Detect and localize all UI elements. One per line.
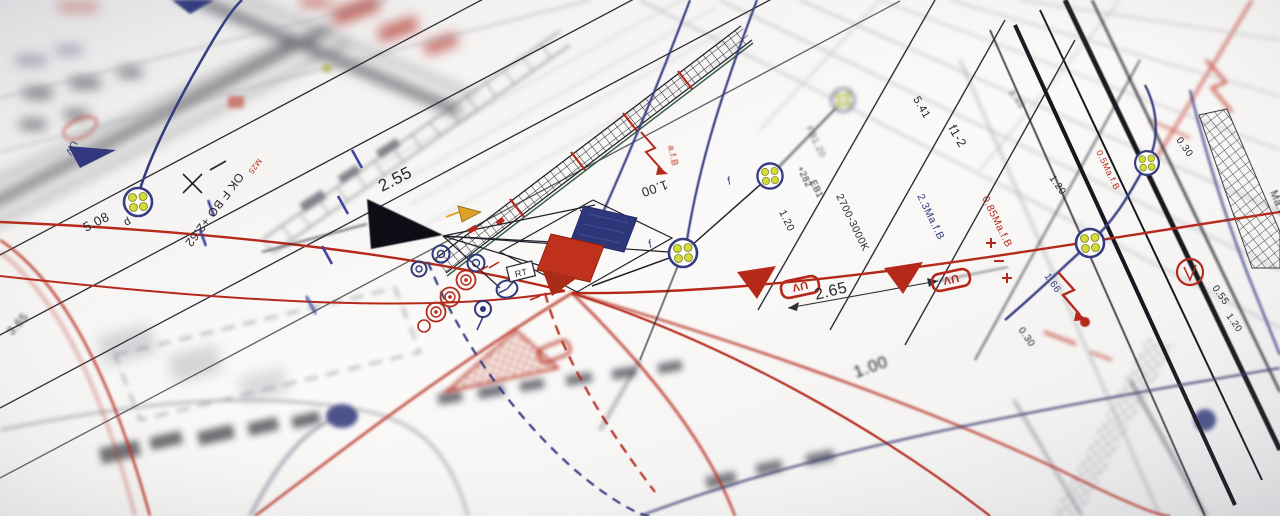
blueprint-canvas: RT UV UV UV 3.65 5.08 d OK F BO +2.62 M2… — [0, 0, 1280, 516]
photo-vignette — [0, 0, 1280, 516]
blueprint-photo: RT UV UV UV 3.65 5.08 d OK F BO +2.62 M2… — [0, 0, 1280, 516]
